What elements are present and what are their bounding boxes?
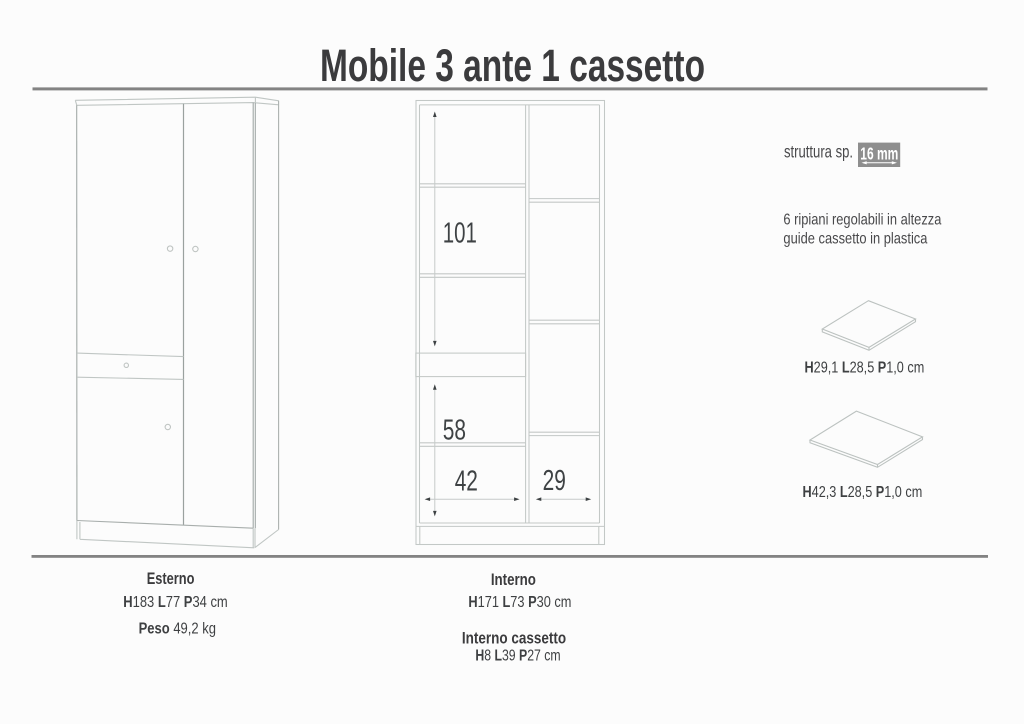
svg-text:guide cassetto in plastica: guide cassetto in plastica	[783, 230, 927, 247]
svg-text:Mobile 3 ante 1 cassetto: Mobile 3 ante 1 cassetto	[320, 41, 705, 91]
svg-text:Interno cassetto: Interno cassetto	[462, 629, 566, 648]
svg-text:H183 L77 P34 cm: H183 L77 P34 cm	[123, 594, 227, 612]
svg-text:H8 L39 P27 cm: H8 L39 P27 cm	[475, 647, 560, 665]
svg-text:29: 29	[543, 465, 566, 497]
svg-text:H42,3 L28,5 P1,0 cm: H42,3 L28,5 P1,0 cm	[803, 484, 923, 502]
svg-text:101: 101	[443, 217, 477, 249]
svg-text:H29,1 L28,5 P1,0 cm: H29,1 L28,5 P1,0 cm	[805, 359, 925, 377]
svg-text:H171 L73 P30 cm: H171 L73 P30 cm	[468, 594, 571, 612]
svg-text:Peso 49,2 kg: Peso 49,2 kg	[139, 620, 216, 638]
svg-text:struttura sp.: struttura sp.	[784, 142, 853, 161]
svg-text:6 ripiani regolabili in altezz: 6 ripiani regolabili in altezza	[783, 211, 941, 228]
svg-text:Interno: Interno	[491, 570, 536, 589]
svg-text:58: 58	[443, 414, 466, 446]
svg-text:42: 42	[455, 465, 478, 497]
svg-text:Esterno: Esterno	[147, 569, 195, 588]
svg-text:16 mm: 16 mm	[860, 144, 898, 164]
